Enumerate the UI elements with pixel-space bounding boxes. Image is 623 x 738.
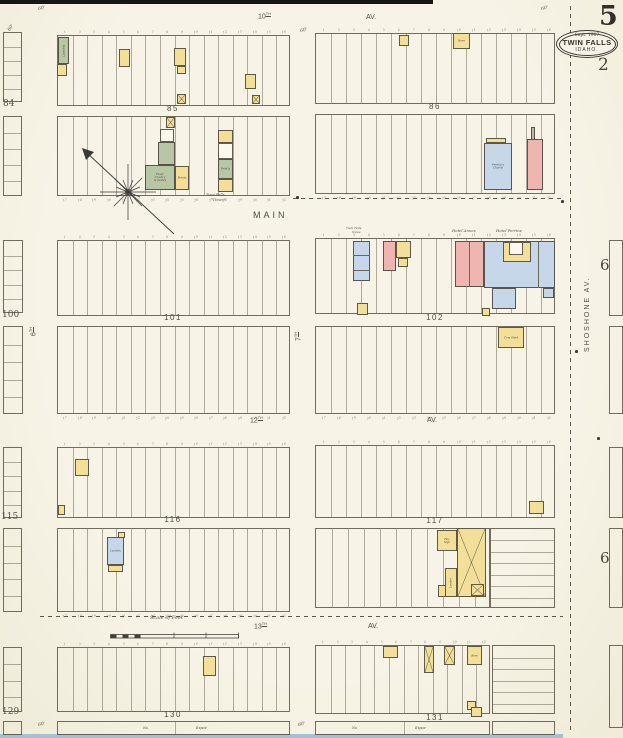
lot-number: 4 <box>367 29 370 33</box>
lot-line <box>102 327 103 413</box>
lot-number: 8 <box>427 29 430 33</box>
building-label: Lumber <box>449 577 452 587</box>
building <box>492 288 516 309</box>
lot-line <box>493 669 554 670</box>
block-r2 <box>609 326 623 414</box>
lot-number: 1 <box>322 641 325 645</box>
lot-number: 12 <box>486 29 491 33</box>
building: Lumber <box>445 568 457 597</box>
building <box>177 66 186 74</box>
lot-line <box>396 529 397 607</box>
lot-line <box>346 239 347 313</box>
lot-line <box>491 540 554 541</box>
lot-line <box>189 36 190 105</box>
lot-number: 6 <box>397 441 400 445</box>
street-label-10: 10TH <box>258 13 271 20</box>
lot-line <box>262 327 263 413</box>
lot-number: 5 <box>382 234 385 238</box>
lot-line <box>346 446 347 517</box>
lot-number: 2 <box>78 31 81 35</box>
map-annotation: 129 <box>2 708 19 717</box>
building <box>482 308 490 316</box>
lot-number: 13 <box>238 236 243 240</box>
lot-line <box>233 327 234 413</box>
lot-line <box>116 327 117 413</box>
lot-number: 16 <box>546 234 551 238</box>
lot-number: 14 <box>516 234 521 238</box>
lot-line <box>406 115 407 193</box>
lot-line <box>4 165 21 166</box>
map-annotation: Expos- <box>415 727 427 730</box>
lot-number: 3 <box>93 31 96 35</box>
lot-number: 5 <box>382 29 385 33</box>
lot-line <box>262 448 263 517</box>
lot-line <box>218 36 219 105</box>
lot-line <box>4 299 22 300</box>
lot-number: 7 <box>151 31 154 35</box>
lot-number: 3 <box>93 643 96 647</box>
lot-number: 3 <box>93 443 96 447</box>
sanborn-map-page: 5 2 6 6 Sept. 1907 TWIN FALLS IDAHO. <box>0 0 623 738</box>
building <box>353 255 370 256</box>
lot-line <box>360 646 361 713</box>
street-label-main: MAIN <box>253 211 288 220</box>
lot-number: 28 <box>486 417 491 421</box>
building <box>529 501 544 514</box>
lot-line <box>346 115 347 193</box>
lot-line <box>102 529 103 611</box>
block-131s <box>315 721 490 735</box>
lot-line <box>491 575 554 576</box>
lot-line <box>491 563 554 564</box>
block-130s <box>57 721 290 735</box>
street-dashed-line <box>40 616 563 617</box>
lot-number: 7 <box>412 234 415 238</box>
block-116u: 12345678910111213141516 <box>57 447 290 518</box>
lot-line <box>131 327 132 413</box>
lot-line <box>262 36 263 105</box>
lot-line <box>116 36 117 105</box>
lot-number: 5 <box>122 443 125 447</box>
building-label: Cow Shed <box>504 336 518 339</box>
lot-number: 10 <box>456 441 461 445</box>
lot-line <box>451 446 452 517</box>
lot-line <box>4 579 21 580</box>
lot-number: 16 <box>546 29 551 33</box>
lot-line <box>436 115 437 193</box>
lot-line <box>145 529 146 611</box>
lot-line <box>376 239 377 313</box>
lot-line <box>481 446 482 517</box>
lot-line <box>87 648 88 711</box>
lot-line <box>218 448 219 517</box>
lot-line <box>466 115 467 193</box>
street-label-12: 12TH <box>250 417 263 424</box>
building <box>218 143 233 159</box>
lot-number: 11 <box>471 234 476 238</box>
map-annotation: Hotel Annex <box>452 229 476 233</box>
lot-number: 12 <box>481 641 486 645</box>
lot-line <box>391 446 392 517</box>
lot-line <box>4 345 22 346</box>
block-r1 <box>609 240 623 316</box>
lot-line <box>380 529 381 607</box>
lot-line <box>276 529 277 611</box>
lot-line <box>404 722 405 734</box>
lot-line <box>204 117 205 195</box>
lot-number: 9 <box>442 441 445 445</box>
lot-line <box>376 115 377 193</box>
lot-number: 11 <box>471 441 476 445</box>
lot-line <box>346 327 347 413</box>
lot-number: 31 <box>531 417 536 421</box>
lot-number: 14 <box>516 29 521 33</box>
lot-line <box>262 529 263 611</box>
lot-line <box>421 327 422 413</box>
lot-line <box>160 327 161 413</box>
lot-number: 6 <box>137 31 140 35</box>
lot-line <box>87 327 88 413</box>
lot-line <box>411 529 412 607</box>
lot-line <box>189 448 190 517</box>
lot-number: 11 <box>209 236 214 240</box>
lot-line <box>204 241 205 315</box>
lot-number: 15 <box>267 236 272 240</box>
lot-line <box>204 448 205 517</box>
building <box>444 646 455 665</box>
block-129s <box>3 721 22 735</box>
building <box>398 258 408 267</box>
lot-number: 19 <box>92 417 97 421</box>
lot-line <box>4 462 21 463</box>
lot-line <box>73 327 74 413</box>
lot-line <box>175 648 176 711</box>
lot-number: 16 <box>281 236 286 240</box>
lot-line <box>175 327 176 413</box>
block-100l <box>3 326 23 414</box>
lot-line <box>189 241 190 315</box>
lot-line <box>276 327 277 413</box>
map-annotation: 100 <box>2 311 19 320</box>
lot-line <box>4 133 21 134</box>
building <box>383 241 396 271</box>
lot-number: 14 <box>252 443 257 447</box>
lot-line <box>4 397 22 398</box>
lot-number: 1 <box>322 29 325 33</box>
lot-number: 32 <box>281 199 286 203</box>
lot-line <box>391 34 392 103</box>
lot-number: 2 <box>78 643 81 647</box>
lot-line <box>116 648 117 711</box>
lot-number: 15 <box>531 29 536 33</box>
block-131r <box>492 645 555 714</box>
lot-line <box>4 75 21 76</box>
lot-number: 28 <box>223 417 228 421</box>
lot-line <box>175 448 176 517</box>
lot-number: 8 <box>166 443 169 447</box>
building <box>399 35 409 46</box>
lot-line <box>4 505 21 506</box>
lot-line <box>4 491 21 492</box>
lot-number: 9 <box>439 641 442 645</box>
lot-line <box>364 529 365 607</box>
lot-line <box>481 34 482 103</box>
lot-number: 19 <box>351 417 356 421</box>
street-label-av: AV. <box>368 623 378 630</box>
lot-number: 9 <box>442 234 445 238</box>
lot-line <box>4 380 22 381</box>
title-oval: Sept. 1907 TWIN FALLS IDAHO. <box>556 30 618 58</box>
map-annotation: Hotel Perrine <box>496 229 522 233</box>
lot-line <box>493 658 554 659</box>
lot-number: 13 <box>501 234 506 238</box>
compass-rose-icon <box>68 140 183 240</box>
lot-line <box>436 239 437 313</box>
lot-line <box>332 529 333 607</box>
lot-number: 25 <box>179 417 184 421</box>
lot-number: 7 <box>409 641 412 645</box>
lot-number: 26 <box>194 417 199 421</box>
lot-line <box>131 648 132 711</box>
lot-line <box>491 552 554 553</box>
lot-line <box>421 446 422 517</box>
lot-number: 2 <box>337 441 340 445</box>
building-label: Presby'n Church <box>492 163 504 170</box>
lot-line <box>160 241 161 315</box>
lot-number: 4 <box>108 31 111 35</box>
lot-line <box>427 529 428 607</box>
lot-line <box>87 529 88 611</box>
lot-number: 24 <box>165 417 170 421</box>
lot-line <box>4 664 21 665</box>
lot-number: 15 <box>531 234 536 238</box>
lot-number: 21 <box>381 417 386 421</box>
map-annotation: 60' <box>541 7 549 13</box>
lot-number: 29 <box>238 199 243 203</box>
lot-line <box>175 241 176 315</box>
sheet-number: 5 <box>599 3 618 30</box>
lot-number: 11 <box>209 31 214 35</box>
lot-line <box>247 448 248 517</box>
lot-line <box>493 704 554 705</box>
lot-line <box>276 648 277 711</box>
lot-number: 2 <box>78 443 81 447</box>
lot-number: 11 <box>209 443 214 447</box>
lot-number: 14 <box>516 441 521 445</box>
lot-number: 12 <box>223 31 228 35</box>
utility-dot <box>597 437 600 440</box>
lot-line <box>4 563 21 564</box>
lot-number: 27 <box>209 417 214 421</box>
building <box>218 130 233 143</box>
lot-line <box>145 327 146 413</box>
lot-line <box>526 34 527 103</box>
lot-line <box>361 115 362 193</box>
street-label-6: 6TH <box>30 327 37 336</box>
lot-line <box>233 529 234 611</box>
lot-line <box>175 722 176 734</box>
lot-number: 15 <box>267 443 272 447</box>
block-116l: 17181920212223242526272829303132 <box>57 528 290 612</box>
lot-line <box>4 61 21 62</box>
block-number-131: 131 <box>426 714 444 722</box>
lot-line <box>73 448 74 517</box>
building-label: Laundry <box>110 550 121 553</box>
lot-line <box>204 327 205 413</box>
lot-line <box>218 648 219 711</box>
lot-number: 15 <box>267 31 272 35</box>
lot-line <box>87 241 88 315</box>
lot-line <box>145 448 146 517</box>
lot-line <box>436 446 437 517</box>
lot-line <box>73 529 74 611</box>
lot-number: 30 <box>252 199 257 203</box>
lot-number: 16 <box>281 31 286 35</box>
lot-line <box>4 681 21 682</box>
lot-line <box>391 115 392 193</box>
lot-number: 26 <box>456 417 461 421</box>
lot-line <box>116 241 117 315</box>
lot-number: 9 <box>442 29 445 33</box>
lot-line <box>421 115 422 193</box>
lot-number: 10 <box>194 236 199 240</box>
lot-number: 22 <box>136 417 141 421</box>
lot-line <box>102 448 103 517</box>
lot-line <box>247 529 248 611</box>
lot-number: 20 <box>366 417 371 421</box>
lot-number: 1 <box>64 643 67 647</box>
lot-line <box>345 646 346 713</box>
block-r3 <box>609 447 623 518</box>
lot-line <box>276 117 277 195</box>
lot-line <box>376 446 377 517</box>
lot-number: 29 <box>238 417 243 421</box>
block-84l <box>3 116 22 196</box>
lot-line <box>466 446 467 517</box>
lot-line <box>404 646 405 713</box>
lot-line <box>496 34 497 103</box>
lot-line <box>189 117 190 195</box>
lot-line <box>131 529 132 611</box>
lot-line <box>189 648 190 711</box>
lot-number: 14 <box>252 643 257 647</box>
building <box>396 241 411 258</box>
building: Presby'n Church <box>484 143 512 190</box>
lot-line <box>4 47 21 48</box>
lot-line <box>4 596 21 597</box>
building <box>174 48 186 66</box>
lot-line <box>131 36 132 105</box>
building: Laundry <box>107 537 124 565</box>
street-dashed-line <box>293 198 563 199</box>
street-label-av: AV. <box>427 417 437 424</box>
lot-number: 31 <box>267 199 272 203</box>
block-115l <box>3 528 22 612</box>
lot-number: 5 <box>122 31 125 35</box>
lot-line <box>262 117 263 195</box>
lot-line <box>421 239 422 313</box>
lot-number: 9 <box>180 443 183 447</box>
building <box>353 241 370 281</box>
lot-number: 10 <box>452 641 457 645</box>
lot-number: 11 <box>467 641 472 645</box>
lot-line <box>462 646 463 713</box>
building: Hay Stge <box>437 530 457 551</box>
lot-line <box>233 241 234 315</box>
lot-line <box>436 327 437 413</box>
lot-line <box>526 446 527 517</box>
lot-number: 16 <box>546 441 551 445</box>
lot-number: 22 <box>396 417 401 421</box>
lot-line <box>204 529 205 611</box>
block-117u: 12345678910111213141516 <box>315 445 555 518</box>
lot-line <box>436 34 437 103</box>
open-shed-cross-icon <box>425 647 433 672</box>
lot-line <box>276 36 277 105</box>
block-86u: 12345678910111213141516 <box>315 33 555 104</box>
lot-line <box>4 256 22 257</box>
lot-line <box>4 270 22 271</box>
lot-number: 32 <box>546 417 551 421</box>
lot-line <box>204 36 205 105</box>
building <box>58 505 65 515</box>
building <box>383 646 398 658</box>
lot-number: 8 <box>427 234 430 238</box>
lot-number: 15 <box>531 441 536 445</box>
lot-line <box>102 36 103 105</box>
building <box>538 242 539 288</box>
lot-line <box>421 34 422 103</box>
map-annotation: 60' <box>38 723 46 729</box>
block-130: 12345678910111213141516 <box>57 647 290 712</box>
building <box>471 584 484 596</box>
lot-line <box>247 117 248 195</box>
map-state: IDAHO. <box>575 48 598 54</box>
building <box>245 74 256 89</box>
building <box>357 303 368 315</box>
map-annotation: 60' <box>300 29 308 35</box>
lot-line <box>491 598 554 599</box>
lot-line <box>4 362 22 363</box>
lot-number: 12 <box>486 441 491 445</box>
lot-line <box>541 327 542 413</box>
lot-number: 14 <box>252 31 257 35</box>
open-shed-cross-icon <box>253 96 259 103</box>
lot-number: 4 <box>367 441 370 445</box>
building: Barn <box>467 646 482 665</box>
scale-bar <box>110 627 240 645</box>
lot-number: 17 <box>321 417 326 421</box>
building <box>108 565 123 572</box>
lot-number: 7 <box>151 443 154 447</box>
open-shed-cross-icon <box>472 585 483 595</box>
lot-number: 12 <box>223 443 228 447</box>
block-number-130: 130 <box>164 711 182 719</box>
lot-line <box>4 476 21 477</box>
lot-line <box>116 448 117 517</box>
lot-number: 16 <box>281 643 286 647</box>
lot-number: 15 <box>267 643 272 647</box>
lot-number: 5 <box>382 441 385 445</box>
lot-line <box>406 327 407 413</box>
building: Barn <box>453 33 470 49</box>
block-r5 <box>609 645 623 728</box>
lot-number: 31 <box>267 417 272 421</box>
map-city: TWIN FALLS <box>563 39 612 48</box>
street-label-shoshone-av: SHOSHONE AV. <box>584 276 591 352</box>
building <box>438 585 446 597</box>
lot-line <box>481 327 482 413</box>
